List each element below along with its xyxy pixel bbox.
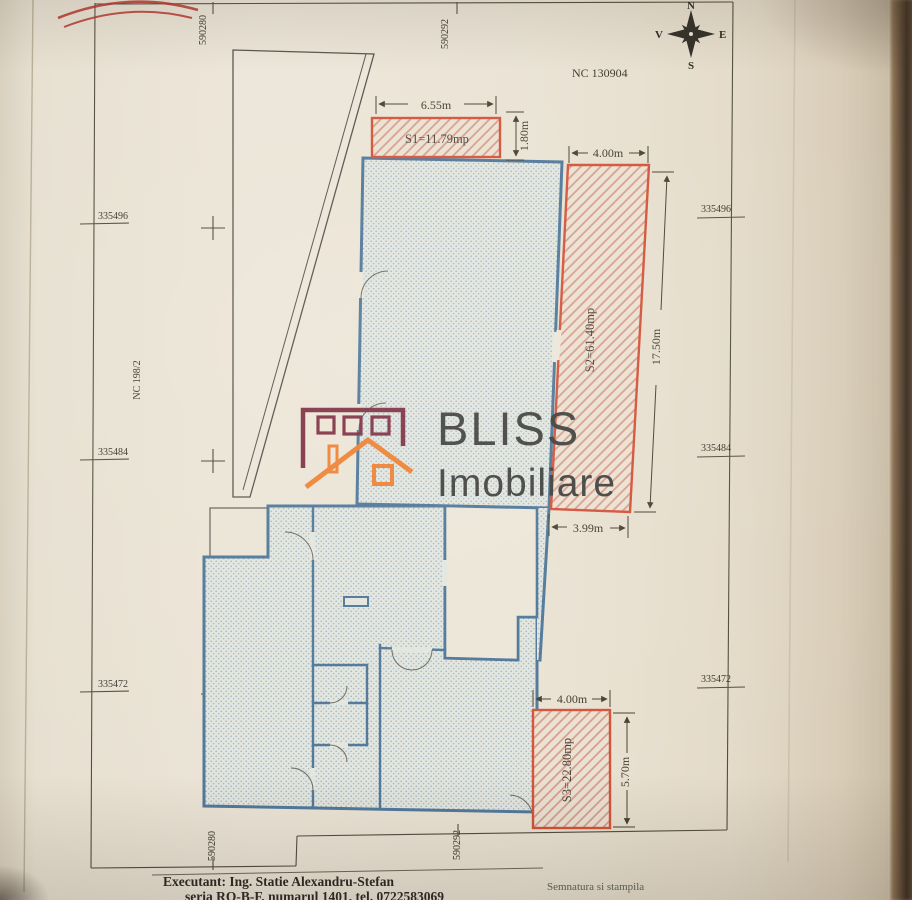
cadastral-number-label: NC 130904 — [572, 66, 628, 80]
brand-name: BLISS — [437, 402, 580, 455]
easting-label-bottom-2: 590292 — [452, 830, 463, 860]
neighbor-parcel-label: NC 198/2 — [132, 360, 143, 399]
photographed-cadastral-plan: 335496 335484 335472 335496 335484 33547… — [0, 0, 912, 900]
compass-north-label: N — [687, 0, 695, 12]
easting-label-bottom-1: 590280 — [207, 831, 218, 861]
dim-s3-width-text: 4.00m — [557, 692, 588, 706]
northing-label-left-1: 335496 — [98, 211, 128, 222]
dim-s2-width-text: 4.00m — [593, 146, 624, 160]
area-s3: S3=22.80mp — [533, 710, 610, 828]
dim-s1-width-text: 6.55m — [421, 98, 452, 112]
compass-east-label: E — [719, 29, 726, 41]
northing-label-right-3: 335472 — [701, 674, 731, 685]
brand-subname: Imobiliare — [437, 462, 616, 505]
area-s2-label: S2=61.40mp — [583, 308, 597, 372]
dim-s3-length-text: 5.70m — [618, 756, 632, 787]
easting-label-top-2: 590292 — [440, 19, 451, 49]
dimension-s3-length: 5.70m — [613, 713, 635, 827]
executant-details-line: seria RO-B-F, numarul 1401, tel. 0722583… — [185, 889, 444, 900]
executant-line: Executant: Ing. Statie Alexandru-Stefan — [163, 874, 394, 889]
easting-label-top-1: 590280 — [198, 15, 209, 45]
title-block: Executant: Ing. Statie Alexandru-Stefan … — [163, 874, 644, 900]
area-s2: S2=61.40mp — [551, 165, 649, 512]
compass-rose: N S E V — [655, 0, 726, 72]
watermark-logo: BLISS Imobiliare — [303, 402, 616, 505]
compass-south-label: S — [688, 60, 694, 72]
signature-label: Semnatura si stampila — [547, 881, 644, 893]
column-stub — [344, 597, 368, 606]
dimension-s2-width: 4.00m — [569, 146, 648, 163]
area-s1-label: S1=11.79mp — [405, 132, 469, 146]
compass-west-label: V — [655, 29, 663, 41]
dimension-s1-width: 6.55m — [376, 96, 496, 114]
northing-label-right-2: 335484 — [701, 443, 731, 454]
site-plan-svg: 335496 335484 335472 335496 335484 33547… — [0, 0, 912, 900]
courtyard-room — [210, 508, 268, 557]
dimension-s3-width: 4.00m — [533, 690, 610, 707]
dimension-s2-bottom: 3.99m — [549, 514, 628, 538]
area-s1: S1=11.79mp — [372, 118, 500, 157]
stamp-fragment — [58, 2, 198, 27]
northing-label-right-1: 335496 — [701, 204, 731, 215]
dim-s2-bottom-text: 3.99m — [573, 521, 604, 535]
northing-label-left-3: 335472 — [98, 679, 128, 690]
northing-label-left-2: 335484 — [98, 447, 128, 458]
dimension-s1-offset: 1.80m — [506, 112, 531, 160]
dim-s1-offset-text: 1.80m — [517, 120, 531, 151]
dim-s2-length-text: 17.50m — [649, 328, 663, 365]
area-s3-label: S3=22.80mp — [560, 738, 574, 802]
